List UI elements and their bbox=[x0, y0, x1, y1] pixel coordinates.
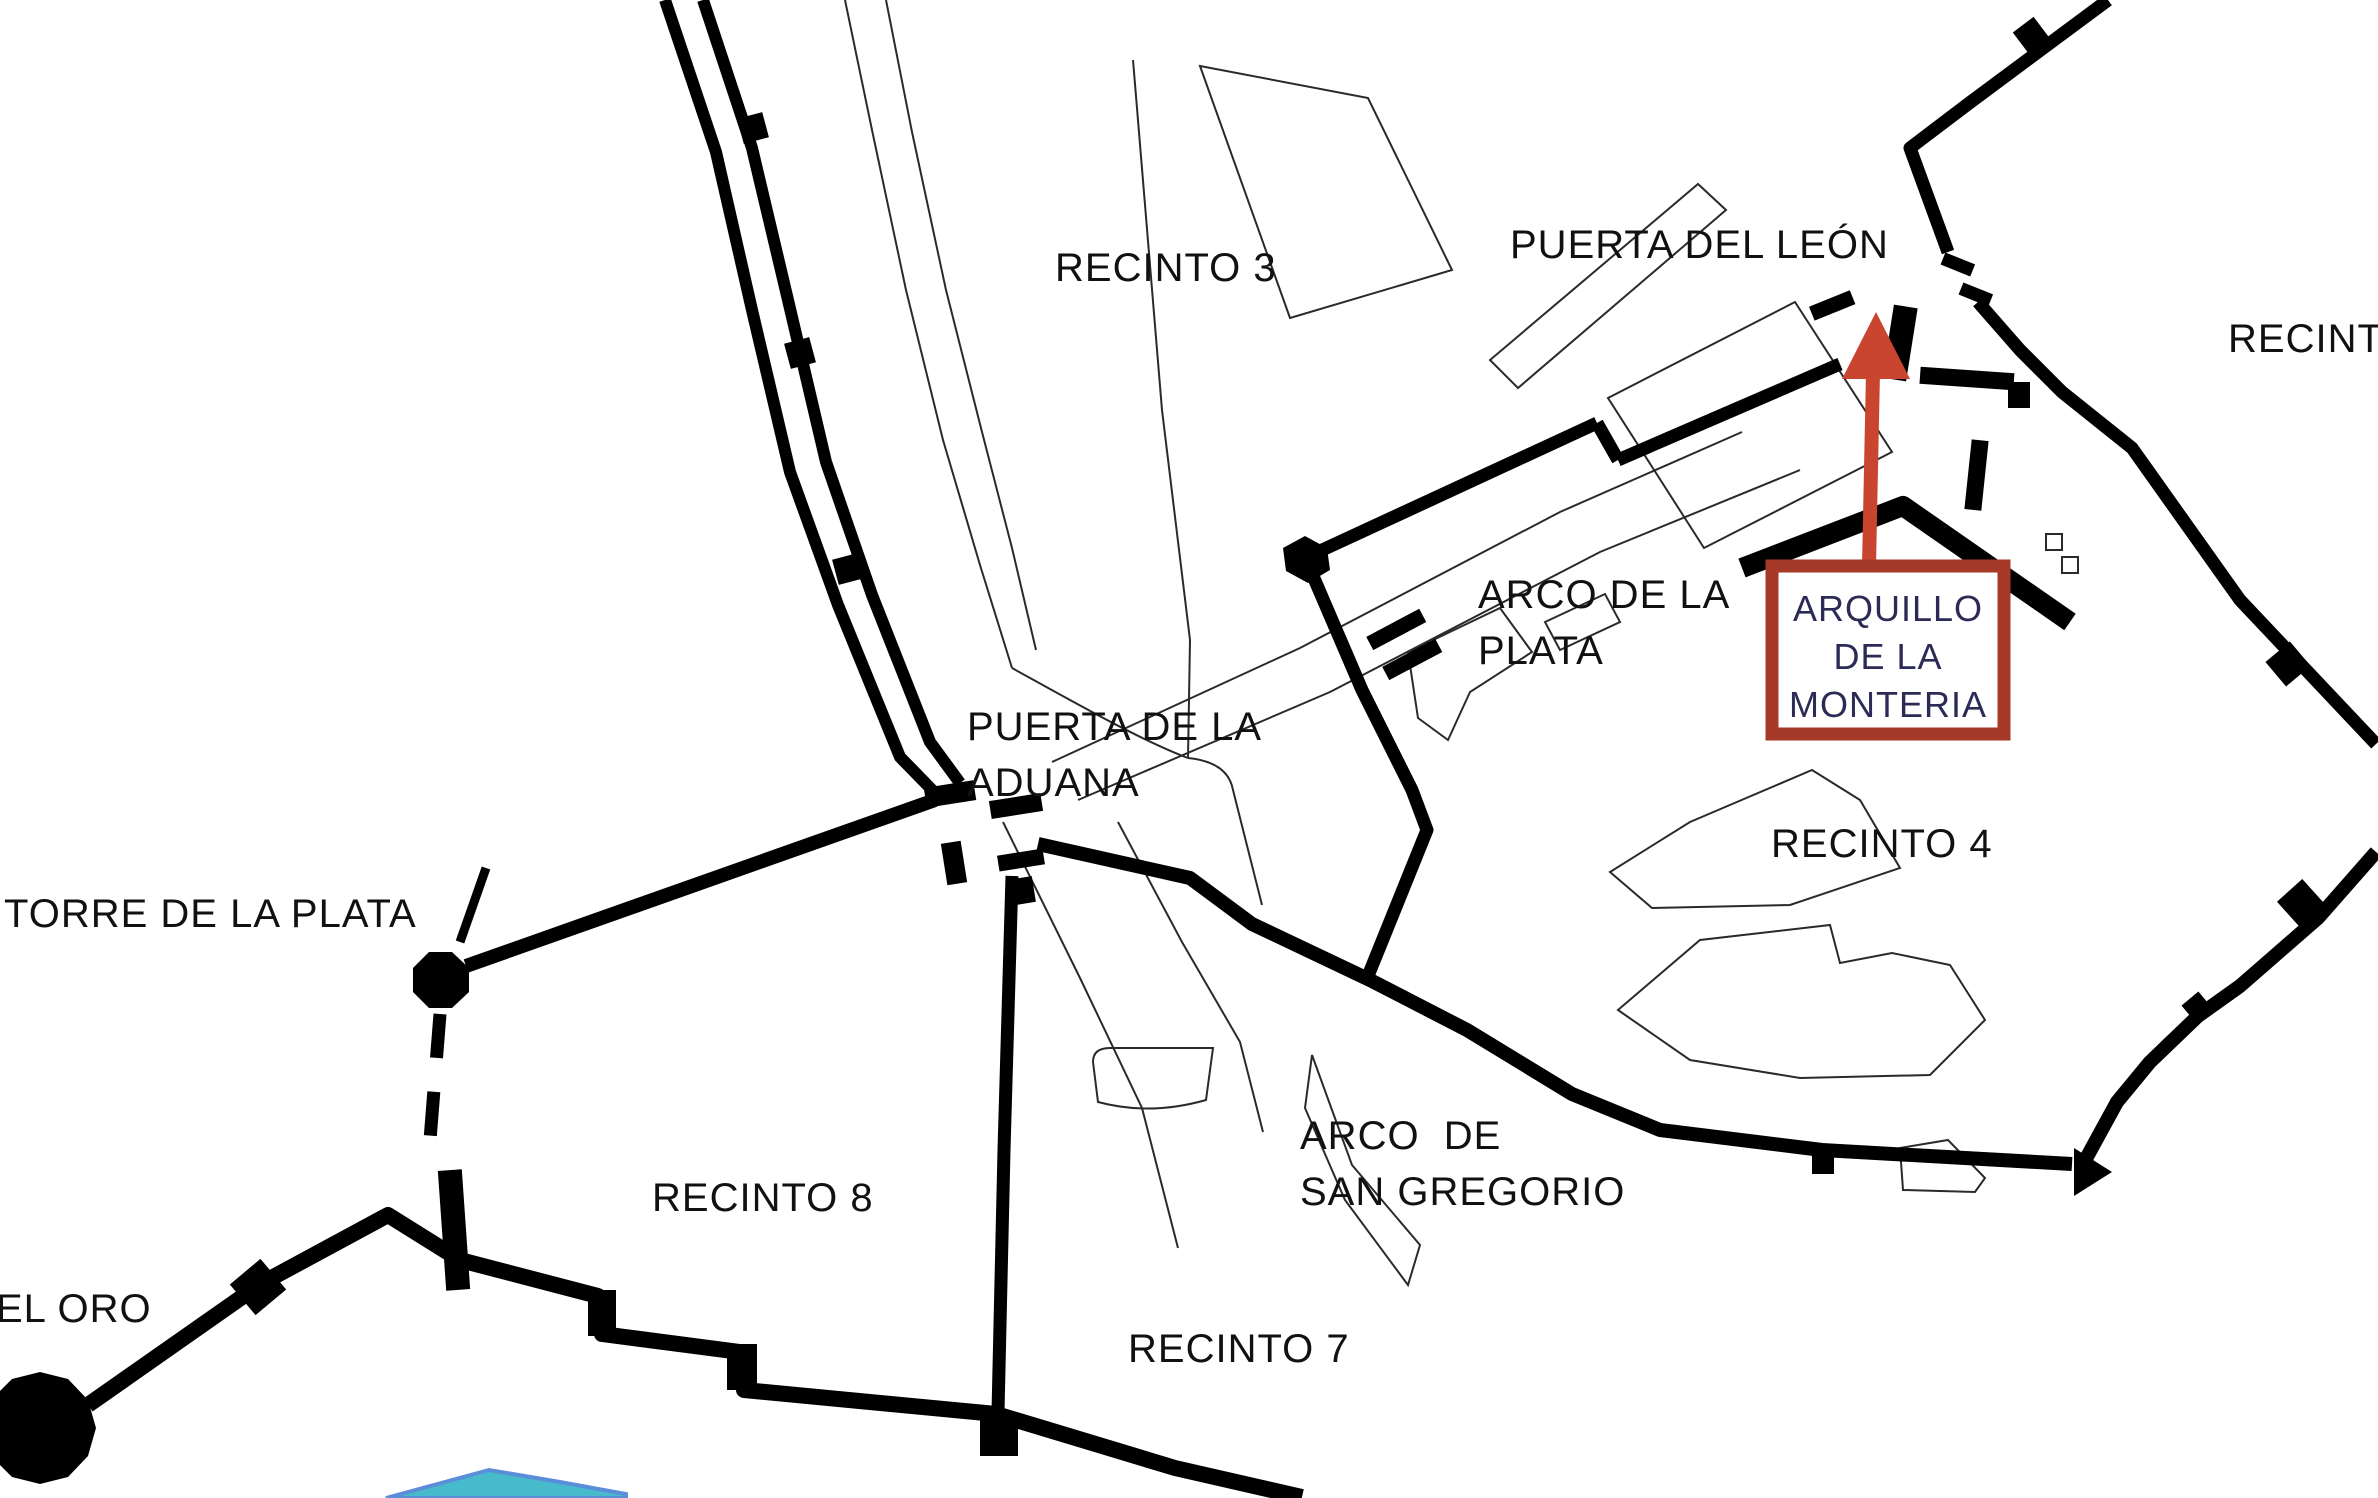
label-recinto-8: RECINTO 8 bbox=[652, 1176, 874, 1220]
wall-northeast bbox=[1910, 0, 2108, 252]
label-puerta-del-leon: PUERTA DEL LEÓN bbox=[1510, 222, 1889, 267]
block-outline bbox=[1900, 1140, 1985, 1192]
label-recinto-4: RECINTO 4 bbox=[1771, 822, 1993, 866]
leon-gate-block bbox=[2008, 382, 2030, 408]
torre-de-la-plata-tower bbox=[413, 952, 469, 1008]
street-outline bbox=[1133, 60, 1190, 758]
wall-step-block bbox=[588, 1290, 616, 1336]
block-outline bbox=[1490, 184, 1726, 388]
small-structure-outline bbox=[2062, 557, 2078, 573]
leon-gate-tick bbox=[1941, 252, 1976, 276]
annotation-box: ARQUILLO DE LA MONTERIA bbox=[1772, 566, 2004, 734]
wall-south-rampart bbox=[1038, 844, 2072, 1164]
towers-and-turrets bbox=[0, 17, 2325, 1484]
leon-gate-tick bbox=[1959, 282, 1994, 306]
wall-tick bbox=[1812, 1146, 1834, 1174]
label-torre-de-la-plata: TORRE DE LA PLATA bbox=[4, 892, 417, 936]
leon-gate-block bbox=[1919, 367, 2014, 391]
wall-east bbox=[1978, 302, 2376, 744]
map-canvas: ARQUILLO DE LA MONTERIA RECINTO 3 PUERTA… bbox=[0, 0, 2378, 1498]
wall-inner bbox=[703, 0, 960, 783]
annotation-line1: ARQUILLO bbox=[1793, 588, 1983, 629]
annotation-arrow-shaft bbox=[1869, 372, 1873, 566]
aduana-gate-block bbox=[941, 841, 967, 886]
tall-tower-bar bbox=[438, 1169, 470, 1290]
annotation-line2: DE LA bbox=[1833, 636, 1942, 677]
label-arco-de-la-plata-line2: PLATA bbox=[1478, 629, 1604, 673]
annotation-line3: MONTERIA bbox=[1789, 684, 1987, 725]
label-recinto-7: RECINTO 7 bbox=[1128, 1327, 1350, 1371]
river-water bbox=[386, 1470, 626, 1498]
lane-outline bbox=[886, 0, 1036, 650]
leon-gate-block bbox=[1809, 290, 1855, 320]
lane-outline bbox=[845, 0, 1012, 668]
wall-torre-oro-chain bbox=[88, 1215, 1302, 1497]
wall-torre-plata-stub bbox=[460, 868, 486, 942]
arquillo-wall-stub bbox=[1964, 439, 1988, 510]
street-outline bbox=[1078, 470, 1800, 800]
block-outline bbox=[1093, 1048, 1213, 1109]
label-arco-san-gregorio-line1: ARCO DE bbox=[1300, 1114, 1501, 1158]
block-outline bbox=[1408, 608, 1532, 740]
wall-recinto-divider bbox=[998, 876, 1012, 1412]
wall-tower bbox=[2265, 641, 2310, 686]
city-walls-map: ARQUILLO DE LA MONTERIA RECINTO 3 PUERTA… bbox=[0, 0, 2378, 1498]
wall-torre-plata-link bbox=[466, 800, 935, 966]
aduana-gate-block bbox=[997, 849, 1045, 872]
wall-southeast bbox=[2082, 852, 2376, 1166]
plata-gate-bar bbox=[1366, 609, 1426, 650]
label-arco-de-la-plata-line1: ARCO DE LA bbox=[1478, 573, 1730, 617]
wall-step-block bbox=[980, 1416, 1018, 1456]
label-puerta-de-la-aduana-line2: ADUANA bbox=[967, 761, 1140, 805]
wall-turret bbox=[784, 337, 816, 369]
wall-outer-barbican bbox=[665, 0, 938, 796]
block-outline bbox=[1608, 302, 1892, 548]
label-torre-del-oro-partial: EL ORO bbox=[0, 1287, 152, 1331]
wall-step-block bbox=[727, 1344, 757, 1390]
torre-del-oro-tower bbox=[0, 1372, 96, 1484]
label-recinto-3: RECINTO 3 bbox=[1055, 246, 1277, 290]
aduana-gate-block bbox=[1006, 876, 1036, 906]
block-outline bbox=[1618, 925, 1985, 1078]
label-puerta-de-la-aduana-line1: PUERTA DE LA bbox=[967, 705, 1262, 749]
label-recinto-right-partial: RECINT bbox=[2228, 317, 2378, 361]
label-arco-san-gregorio-line2: SAN GREGORIO bbox=[1300, 1170, 1625, 1214]
small-structure-outline bbox=[2046, 534, 2062, 550]
wall-plata-to-leon bbox=[1307, 364, 1840, 557]
wall-dashed bbox=[428, 1014, 440, 1165]
